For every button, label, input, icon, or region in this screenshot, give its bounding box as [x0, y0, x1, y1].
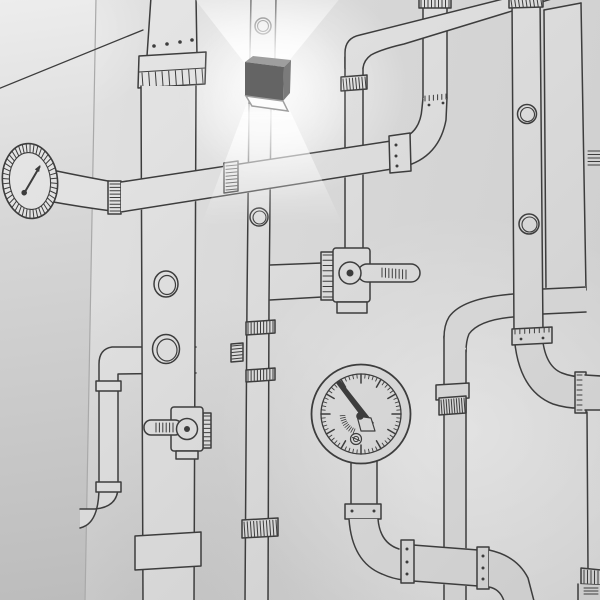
cube-wall-lamp [230, 45, 300, 120]
duct-collar [135, 532, 201, 570]
rivet-plate [575, 372, 586, 413]
rib-stub [588, 151, 600, 165]
thin-diagonal-pipe-line [0, 30, 143, 89]
duct-porthole [154, 271, 178, 297]
rivet-plate [512, 327, 552, 345]
top-duct [135, 0, 206, 600]
pipe-collar [96, 482, 121, 492]
gauge-hub [356, 412, 364, 420]
left-gauge [0, 141, 61, 221]
pipe-collar [96, 381, 121, 391]
valve-tab [337, 302, 367, 313]
valve-flange [203, 413, 211, 448]
valve-tab [176, 451, 198, 459]
center-valve [321, 248, 420, 313]
lamp-front-face [245, 62, 284, 101]
pipe-mural [0, 0, 600, 600]
rivet-plate [389, 133, 411, 173]
rivet-plate [345, 504, 381, 519]
photo-wall-scene [0, 0, 600, 600]
drain-pipe [345, 450, 535, 600]
right-duct [543, 3, 600, 315]
big-gauge [312, 365, 411, 464]
right-edge-pipe [578, 412, 600, 600]
